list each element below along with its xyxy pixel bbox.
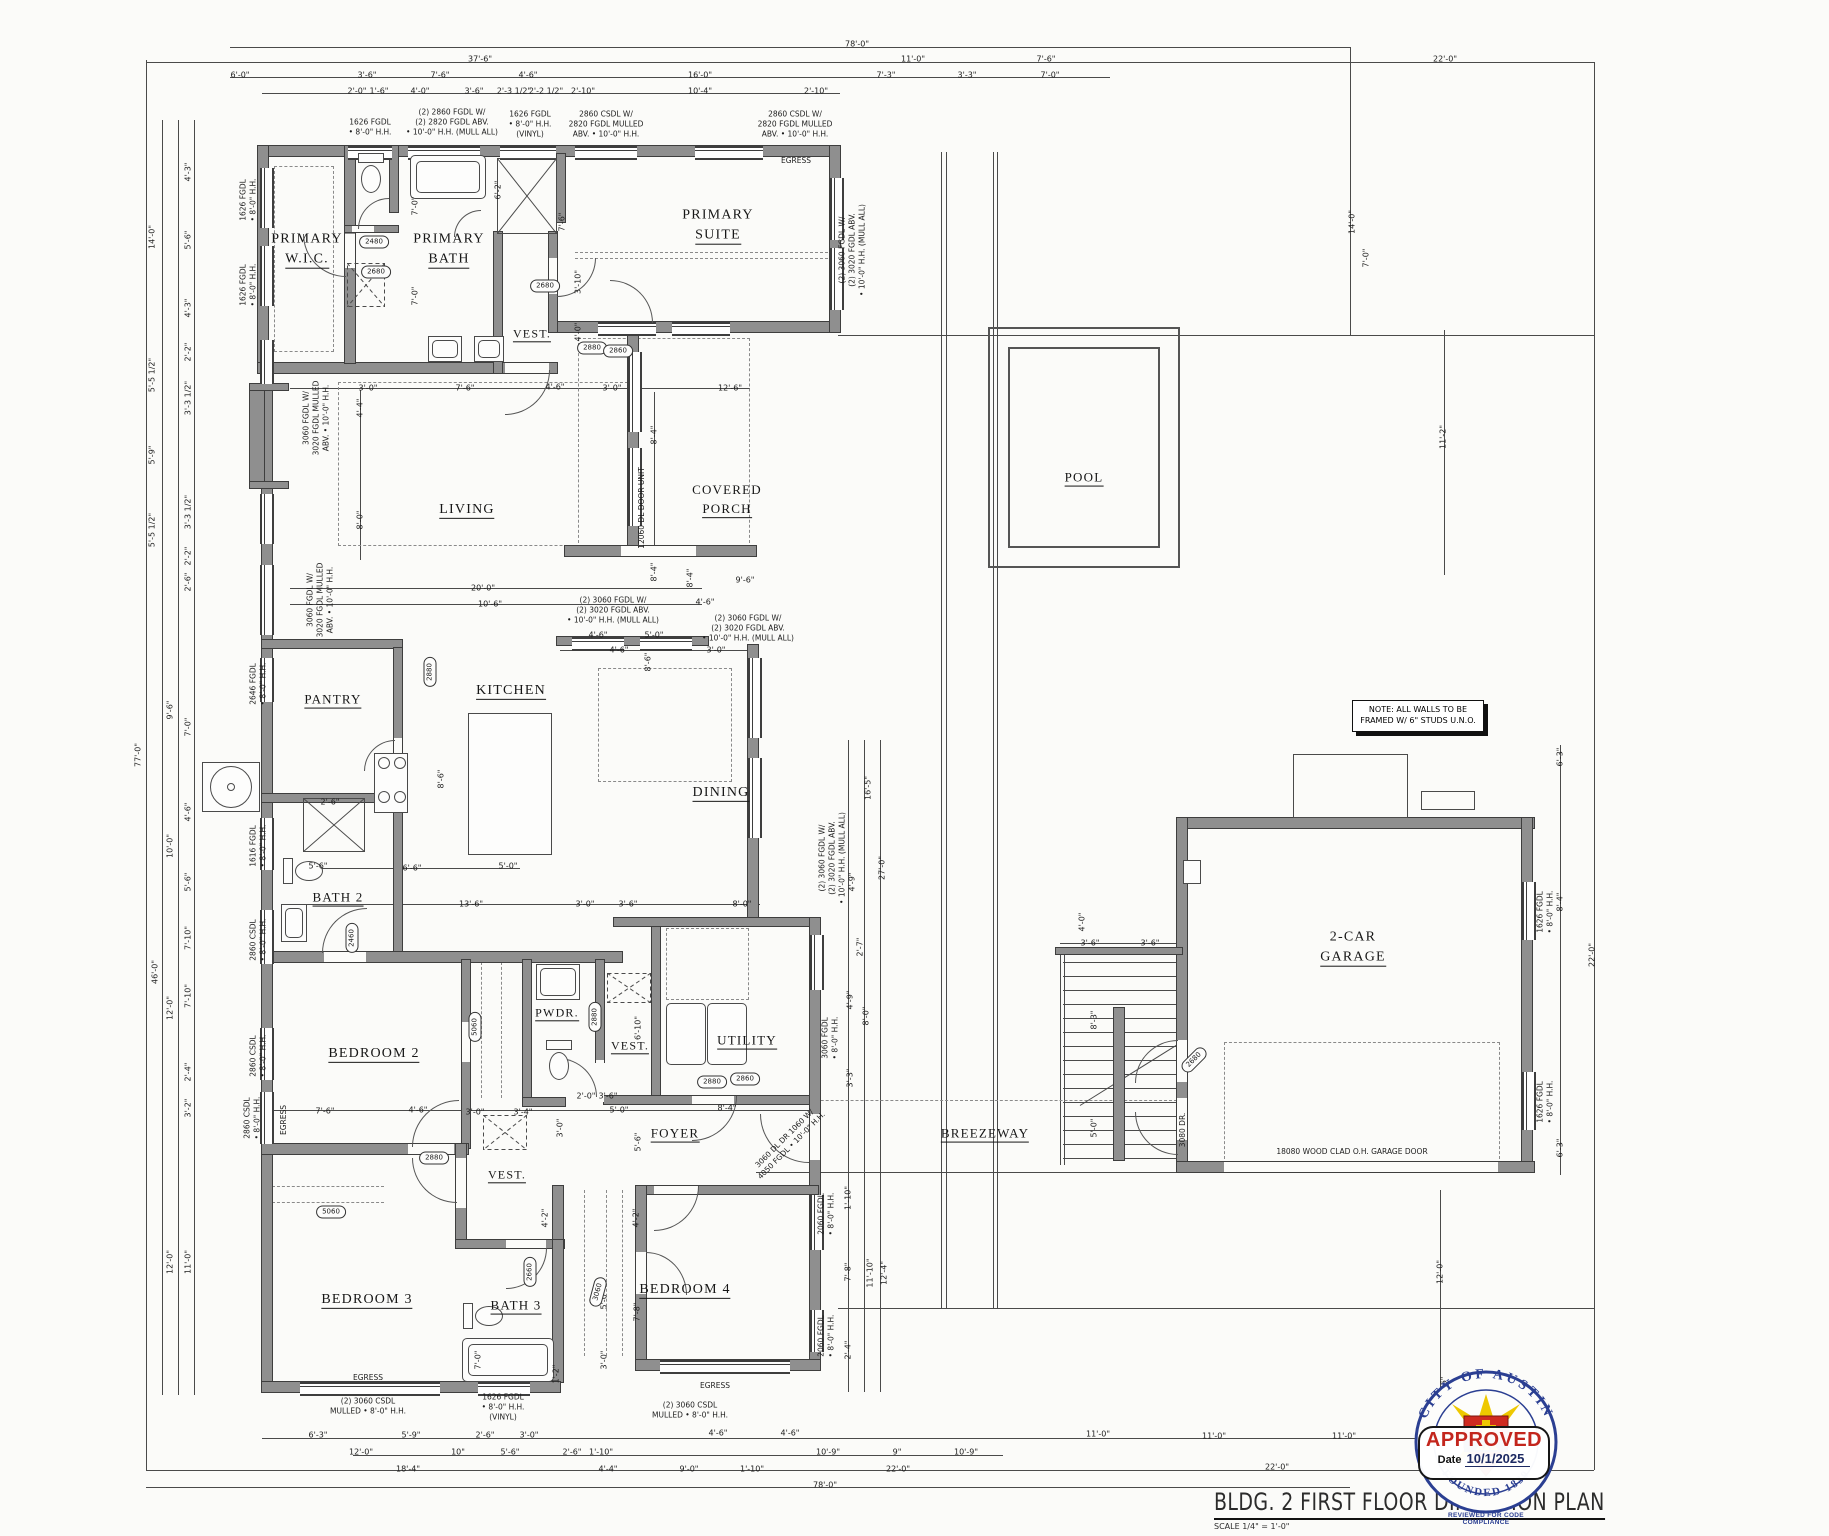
dim-label: 22'-0" <box>1588 943 1597 967</box>
spec-label: 1626 FGDL • 8'-0" H.H. <box>1535 891 1555 934</box>
door-tag: 2860 <box>603 345 633 358</box>
dim-label: 4'-3" <box>184 163 193 182</box>
spec-label: (2) 3060 FGDL W/ (2) 3020 FGDL ABV. • 10… <box>702 613 794 642</box>
door-opening <box>621 546 696 556</box>
toilet-tank <box>546 1040 572 1050</box>
spec-label: (2) 3060 CSDL MULLED • 8'-0" H.H. <box>330 1396 406 1416</box>
toilet-tank <box>358 153 384 163</box>
room-label-breezeway: BREEZEWAY <box>941 1125 1029 1144</box>
dim-label: 4'-6" <box>519 71 538 80</box>
room-label-living: LIVING <box>439 500 494 520</box>
room-label-garage: 2-CARGARAGE <box>1320 928 1386 969</box>
dim-label: 11'-2" <box>1439 425 1448 449</box>
door-opening <box>1224 1162 1498 1172</box>
dim-label: 10" <box>451 1448 465 1457</box>
room-label-line: FOYER <box>651 1126 700 1143</box>
dim-label: 3'-6" <box>358 71 377 80</box>
dim-label: 16'-0" <box>688 71 712 80</box>
window <box>1522 882 1536 940</box>
spec-label: 2646 FGDL • 8'-0" H.H. <box>248 663 268 706</box>
door-swing <box>412 1158 457 1203</box>
dim-label: 2'-4" <box>844 1341 853 1360</box>
sink-bowl <box>432 340 458 358</box>
dimension-line <box>1350 47 1351 335</box>
door-swing <box>358 198 389 229</box>
window <box>260 168 274 228</box>
room-label-vest-1: VEST. <box>513 325 551 342</box>
stair-tread <box>1063 962 1177 963</box>
spec-label: (2) 3060 FGDL W/ (2) 3020 FGDL ABV. • 10… <box>817 812 846 904</box>
spec-label: EGRESS <box>279 1105 289 1135</box>
dim-label: 5'-5 1/2" <box>148 358 157 392</box>
dim-label: 3'-0" <box>576 900 595 909</box>
dim-label: 1'-10" <box>844 1186 853 1210</box>
dim-label: 2'-7" <box>856 938 865 957</box>
window <box>575 146 637 160</box>
dashed-line <box>575 258 828 259</box>
stove-burner <box>394 791 406 803</box>
stair-tread <box>1063 976 1177 977</box>
room-label-bedroom-4: BEDROOM 4 <box>639 1280 730 1300</box>
dim-label: 5'-9" <box>148 446 157 465</box>
door-tag: 2880 <box>419 1152 449 1165</box>
spec-label: 2060 FGDL • 8'-0" H.H. <box>816 1193 836 1236</box>
window <box>748 758 762 838</box>
dim-label: 7'-0" <box>411 197 420 216</box>
dimension-line <box>146 60 147 1470</box>
room-label-line: KITCHEN <box>476 683 546 700</box>
toilet-bowl <box>549 1052 569 1080</box>
dim-label: 3'-0" <box>603 384 622 393</box>
spec-label: 3060 FGDL W/ 3020 FGDL MULLED ABV. • 10'… <box>305 563 334 638</box>
room-label-pwdr: PWDR. <box>535 1004 579 1021</box>
approved-banner: APPROVED Date 10/1/2025 <box>1418 1426 1550 1480</box>
window <box>260 494 274 544</box>
dim-label: 7'-10" <box>184 984 193 1008</box>
room-label-line: W.I.C. <box>285 252 329 269</box>
reviewed-note: REVIEWED FOR CODE COMPLIANCE <box>1428 1512 1544 1526</box>
dim-label: 18'-4" <box>396 1465 420 1474</box>
dim-label: 8'-0" <box>356 511 365 530</box>
wall <box>250 384 288 390</box>
window <box>672 322 730 336</box>
door-tag: 2880 <box>589 1002 602 1032</box>
dim-label: 10'-9" <box>816 1448 840 1457</box>
dim-label: 78'-0" <box>845 40 869 49</box>
door-swing <box>1135 1112 1178 1155</box>
dim-label: 2'-2" <box>184 547 193 566</box>
dim-label: 5'-6" <box>184 231 193 250</box>
door-swing <box>322 908 367 953</box>
dim-label: 4'-0" <box>411 87 430 96</box>
dim-label: 11'-0" <box>1086 1430 1110 1439</box>
dim-label: 3'-6" <box>599 1092 618 1101</box>
dim-label: 7'-0" <box>411 287 420 306</box>
dim-label: 3'-6" <box>1141 939 1160 948</box>
dim-label: 6'-2" <box>494 181 503 200</box>
room-label-line: BATH 3 <box>491 1298 542 1315</box>
dim-label: 3'-0" <box>520 1431 539 1440</box>
door-tag: 2680 <box>530 280 560 293</box>
dim-label: 3'-3" <box>958 71 977 80</box>
room-label-line: LIVING <box>439 502 494 519</box>
roof-outline <box>1293 754 1408 818</box>
dim-label: 6'-3" <box>1556 748 1565 767</box>
room-label-line: BEDROOM 3 <box>321 1292 412 1309</box>
dashed-line <box>272 1202 384 1203</box>
door-opening <box>506 1240 546 1248</box>
toilet-tank <box>283 858 293 884</box>
dim-label: 77'-0" <box>134 743 143 767</box>
spec-label: 3080 DR. <box>1178 1113 1188 1148</box>
washer <box>666 1003 706 1065</box>
dim-label: 2'-3 1/2" <box>497 87 531 96</box>
dim-label: 8'-0" <box>733 900 752 909</box>
room-label-line: BREEZEWAY <box>941 1126 1029 1143</box>
room-label-line: SUITE <box>695 228 741 245</box>
room-label-bath-3: BATH 3 <box>491 1297 542 1316</box>
door-tag: 5060 <box>316 1206 346 1219</box>
dim-label: 7'-6" <box>1037 55 1056 64</box>
dimension-line <box>146 62 1594 63</box>
dim-label: 20'-0" <box>471 584 495 593</box>
kitchen-island <box>468 713 552 855</box>
dim-label: 3'-2" <box>184 1099 193 1118</box>
room-label-line: BATH <box>428 252 469 269</box>
dimension-line <box>146 1470 1594 1471</box>
window <box>1522 1072 1536 1130</box>
dimension-line <box>880 740 881 1392</box>
spec-label: 2860 CSDL W/ 2820 FGDL MULLED ABV. • 10'… <box>758 109 833 138</box>
dim-label: 12'-0" <box>166 1250 175 1274</box>
dashed-outline <box>666 928 749 1000</box>
spec-label: EGRESS <box>353 1373 383 1383</box>
spec-label: EGRESS <box>700 1381 730 1391</box>
room-label-primary-wic: PRIMARYW.I.C. <box>271 230 342 271</box>
room-label-covered-porch: COVEREDPORCH <box>692 481 762 519</box>
room-label-line: PWDR. <box>535 1005 579 1021</box>
dimension-line <box>300 904 760 905</box>
spec-label: 2060 FGDL • 8'-0" H.H. <box>816 1315 836 1358</box>
room-label-pool: POOL <box>1065 469 1104 488</box>
dim-label: 9'-6" <box>736 576 755 585</box>
dim-label: 3'-6" <box>465 87 484 96</box>
dim-label: 11'-10" <box>866 1258 875 1287</box>
dimension-line <box>838 1308 1595 1309</box>
room-label-line: PRIMARY <box>271 232 342 247</box>
dim-label: 4'-9" <box>846 991 855 1010</box>
room-label-vest-2: VEST. <box>611 1037 649 1054</box>
dim-label: 5'-6" <box>501 1448 520 1457</box>
spec-label: 1616 FGDL • 8'-0" H.H. <box>248 825 268 868</box>
dim-label: 6'-3" <box>1556 1139 1565 1158</box>
dim-label: 14'-0" <box>1348 210 1357 234</box>
wall <box>1177 818 1534 828</box>
dim-label: 16'-5" <box>864 776 873 800</box>
dim-label: 4'-6" <box>409 1106 428 1115</box>
dashed-line <box>272 1186 384 1187</box>
toilet-tank <box>463 1303 473 1329</box>
dimension-line <box>162 120 163 1395</box>
wall <box>523 1098 565 1106</box>
dashed-line <box>501 962 502 1098</box>
dimension-line <box>1060 948 1061 1165</box>
x-box <box>497 158 557 234</box>
dim-label: 4'-2" <box>632 1209 641 1228</box>
dim-label: 7'-0" <box>1362 249 1371 268</box>
dim-label: 2'-10" <box>571 87 595 96</box>
dim-label: 4'-9" <box>848 873 857 892</box>
dim-label: 5'-6" <box>184 873 193 892</box>
dim-label: 7'-8" <box>844 1263 853 1282</box>
window <box>695 146 763 160</box>
spec-label: 3060 FGDL W/ 3020 FGDL MULLED ABV. • 10'… <box>301 381 330 456</box>
spec-label: 2860 CSDL • 8'-0" H.H. <box>248 1035 268 1078</box>
dim-label: 12'-0" <box>349 1448 373 1457</box>
dimension-line <box>146 1487 1350 1488</box>
dimension-line <box>1594 62 1595 1470</box>
dim-label: 8'-3" <box>1090 1011 1099 1030</box>
approved-text: APPROVED <box>1420 1428 1548 1452</box>
x-box <box>483 1115 527 1150</box>
dim-label: 4'-6" <box>696 598 715 607</box>
dim-label: 3'-0" <box>707 646 726 655</box>
dim-label: 7'-8" <box>633 1303 642 1322</box>
room-label-bedroom-2: BEDROOM 2 <box>328 1044 419 1064</box>
dim-label: 27'-0" <box>878 856 887 880</box>
dim-label: 4'-3" <box>184 299 193 318</box>
dim-label: 22'-0" <box>1265 1463 1289 1472</box>
spec-label: 1626 FGDL • 8'-0" H.H. <box>238 264 258 307</box>
dimension-line <box>1060 943 1180 944</box>
room-label-line: UTILITY <box>717 1033 777 1050</box>
wall <box>553 1186 563 1240</box>
door-tag: 2860 <box>730 1073 760 1086</box>
room-label-bedroom-3: BEDROOM 3 <box>321 1290 412 1310</box>
dim-label: 6'-6" <box>403 864 422 873</box>
stove-burner <box>378 757 390 769</box>
window <box>260 565 274 635</box>
dim-label: 12'-6" <box>718 384 742 393</box>
toilet-bowl <box>361 165 381 193</box>
spec-label: 1626 FGDL • 8'-0" H.H. <box>349 117 392 137</box>
wall <box>394 794 402 958</box>
room-label-line: PORCH <box>702 501 751 518</box>
dim-label: 1'-10" <box>740 1465 764 1474</box>
spec-label: 1626 FGDL • 8'-0" H.H. (VINYL) <box>509 109 552 138</box>
dim-label: 6'-10" <box>634 1016 643 1040</box>
roof-outline <box>1421 791 1475 810</box>
door-swing <box>610 280 653 323</box>
room-label-kitchen: KITCHEN <box>476 681 546 701</box>
dim-label: 2'-4" <box>184 1063 193 1082</box>
door-tag: 2480 <box>359 236 389 249</box>
dim-label: 78'-0" <box>813 1481 837 1490</box>
room-label-primary-suite: PRIMARYSUITE <box>682 206 753 247</box>
dim-label: 5'-0" <box>1090 1119 1099 1138</box>
wall <box>614 918 818 926</box>
window <box>260 340 274 384</box>
dimension-line <box>864 740 865 1392</box>
dim-label: 3'-6" <box>1081 939 1100 948</box>
dim-label: 2'-6" <box>476 1431 495 1440</box>
dim-label: 7'-10" <box>184 926 193 950</box>
dimension-line <box>848 740 849 1392</box>
water-heater <box>1183 860 1201 884</box>
dim-label: 22'-0" <box>886 1465 910 1474</box>
stair-tread <box>1063 990 1177 991</box>
door-tag: 2460 <box>346 923 359 953</box>
dimension-line <box>230 47 1350 48</box>
dim-label: 4'-6" <box>781 1429 800 1438</box>
spec-label: EGRESS <box>781 156 811 166</box>
dim-label: 8'-4" <box>1556 893 1565 912</box>
room-label-line: PRIMARY <box>413 232 484 247</box>
sink-bowl <box>540 968 576 996</box>
bathtub-inner <box>416 161 480 193</box>
dim-label: 3'-10" <box>574 270 583 294</box>
dashed-outline <box>1224 1042 1500 1164</box>
dimension-line <box>838 335 1595 336</box>
window <box>660 1360 790 1374</box>
room-label-bath-2: BATH 2 <box>313 889 364 908</box>
room-label-utility: UTILITY <box>717 1032 777 1051</box>
dim-label: 9" <box>893 1448 902 1457</box>
dimension-line <box>1444 330 1445 575</box>
spec-label: 18080 WOOD CLAD O.H. GARAGE DOOR <box>1276 1147 1427 1157</box>
dim-label: 8'-4" <box>686 569 695 588</box>
wall <box>523 960 531 1106</box>
room-label-pantry: PANTRY <box>304 691 361 710</box>
dimension-line <box>178 120 179 1395</box>
spec-label: (2) 2860 FGDL W/ (2) 2820 FGDL ABV. • 10… <box>406 107 498 136</box>
dim-label: 12'-0" <box>1436 1260 1445 1284</box>
approval-stamp: CITY OF AUSTIN FOUNDED 1839 APPROVED Dat… <box>1406 1364 1596 1534</box>
dim-label: 1'-6" <box>370 87 389 96</box>
room-label-line: BATH 2 <box>313 890 364 907</box>
dim-label: 7'-0" <box>184 718 193 737</box>
dim-label: 12'-0" <box>166 996 175 1020</box>
dim-label: 4'-6" <box>709 1429 728 1438</box>
dashed-line <box>622 1190 623 1356</box>
dashed-line <box>584 1190 585 1356</box>
window <box>748 658 762 738</box>
room-label-vest-3: VEST. <box>488 1166 526 1183</box>
dim-label: 8'-4" <box>650 563 659 582</box>
spec-label: 12060 DL DOOR UNIT <box>637 467 647 549</box>
room-label-line: BEDROOM 2 <box>328 1046 419 1063</box>
room-label-foyer: FOYER <box>651 1125 700 1144</box>
stove-burner <box>378 791 390 803</box>
dim-label: 1'-2" <box>552 1365 561 1384</box>
ac-hub <box>227 783 235 791</box>
date-label: Date <box>1438 1454 1462 1466</box>
door-tag: 2680 <box>361 266 391 279</box>
dimension-line <box>194 120 195 1395</box>
window <box>598 322 656 336</box>
room-label-line: DINING <box>693 785 750 802</box>
date-value: 10/1/2025 <box>1465 1451 1531 1467</box>
spec-label: 1626 FGDL • 8'-0" H.H. <box>1535 1081 1555 1124</box>
wall <box>250 384 264 488</box>
dim-label: 5'-5 1/2" <box>148 513 157 547</box>
sink-bowl <box>478 340 500 358</box>
room-label-line: PRIMARY <box>682 208 753 223</box>
window <box>628 352 642 432</box>
dim-label: 5'-9" <box>402 1431 421 1440</box>
dim-label: 4'-4" <box>599 1465 618 1474</box>
dim-label: 6'-0" <box>231 71 250 80</box>
spec-label: 1626 FGDL • 8'-0" H.H. (VINYL) <box>482 1392 525 1421</box>
spec-label: 2860 CSDL • 8'-0" H.H. <box>248 919 268 962</box>
dim-label: 1'-10" <box>589 1448 613 1457</box>
dim-label: 5'-6" <box>634 1133 643 1152</box>
approved-date: Date 10/1/2025 <box>1420 1452 1548 1467</box>
wall <box>553 1240 563 1382</box>
dim-label: 2'-6" <box>563 1448 582 1457</box>
dim-label: 3'-0" <box>556 1119 565 1138</box>
dim-label: 3'-0" <box>600 1351 609 1370</box>
dim-label: 8'-6" <box>644 653 653 672</box>
dim-label: 46'-0" <box>151 960 160 984</box>
door-opening <box>324 952 366 962</box>
dim-label: 9'-0" <box>680 1465 699 1474</box>
dim-label: 4'-0" <box>574 323 583 342</box>
dim-label: 3'-0" <box>466 1108 485 1117</box>
dim-label: 4'-6" <box>546 383 565 392</box>
room-label-line: VEST. <box>611 1038 649 1054</box>
room-label-line: VEST. <box>488 1167 526 1183</box>
dim-label: 7'-6" <box>431 71 450 80</box>
wall <box>652 926 660 1098</box>
dim-label: 11'-0" <box>1202 1432 1226 1441</box>
dim-label: 3'-6" <box>619 900 638 909</box>
spec-label: 3060 FGDL • 8'-0" H.H. <box>820 1017 840 1060</box>
spec-label: (2) 3060 FGDL W/ (2) 3020 FGDL ABV. • 10… <box>837 204 866 296</box>
dim-label: 8'-6" <box>437 770 446 789</box>
floor-plan-sheet: PRIMARYW.I.C.PRIMARYBATHVEST.PRIMARYSUIT… <box>0 0 1829 1536</box>
room-label-line: BEDROOM 4 <box>639 1282 730 1299</box>
dimension-line <box>1064 948 1065 1165</box>
door-tag: 2880 <box>424 657 437 687</box>
dim-label: 7'-6" <box>316 1107 335 1116</box>
dim-label: 2'-10" <box>804 87 828 96</box>
dim-label: 5'-0" <box>610 1106 629 1115</box>
spec-label: (2) 3060 CSDL MULLED • 8'-0" H.H. <box>652 1400 728 1420</box>
dim-label: 10'-9" <box>954 1448 978 1457</box>
dim-label: 5'-0" <box>499 862 518 871</box>
dim-label: 7'-0" <box>1041 71 1060 80</box>
sink-bowl <box>285 908 303 938</box>
wall <box>262 640 402 648</box>
room-label-dining: DINING <box>693 783 750 803</box>
wall <box>250 482 288 488</box>
dim-label: 4'-6" <box>610 646 629 655</box>
spec-label: (2) 3060 FGDL W/ (2) 3020 FGDL ABV. • 10… <box>567 595 659 624</box>
window <box>810 935 824 990</box>
dim-label: 8'-0" <box>862 1007 871 1026</box>
dim-label: 11'-0" <box>184 1250 193 1274</box>
dim-label: 4'-2" <box>541 1209 550 1228</box>
stove-burner <box>394 757 406 769</box>
door-opening <box>456 1158 466 1208</box>
wall <box>1114 1008 1124 1160</box>
room-label-line: POOL <box>1065 470 1104 487</box>
dim-label: 7'-6" <box>456 384 475 393</box>
dim-label: 3'-3" <box>846 1069 855 1088</box>
dimension-line <box>290 588 702 589</box>
dim-label: 3'-0" <box>359 384 378 393</box>
